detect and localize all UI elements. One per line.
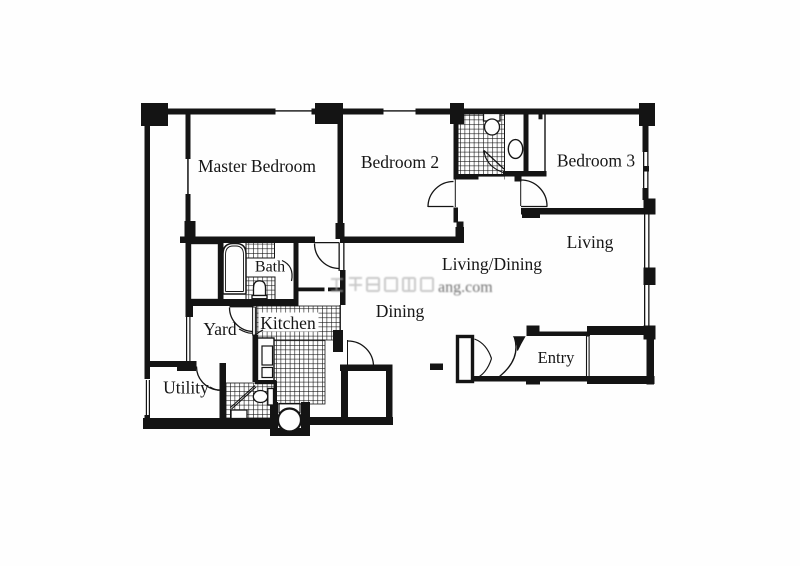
svg-text:Bath: Bath (255, 259, 285, 276)
svg-text:Bedroom 3: Bedroom 3 (557, 151, 636, 171)
svg-text:Yard: Yard (203, 319, 236, 339)
svg-text:Living: Living (567, 232, 614, 252)
svg-text:Utility: Utility (163, 378, 209, 398)
svg-text:Kitchen: Kitchen (260, 313, 316, 333)
svg-text:Living/Dining: Living/Dining (442, 254, 542, 274)
svg-text:Entry: Entry (538, 348, 575, 367)
svg-text:Dining: Dining (376, 301, 425, 321)
svg-text:ang.com: ang.com (438, 279, 493, 296)
svg-text:Bedroom 2: Bedroom 2 (361, 152, 439, 172)
svg-text:Master Bedroom: Master Bedroom (198, 156, 316, 176)
